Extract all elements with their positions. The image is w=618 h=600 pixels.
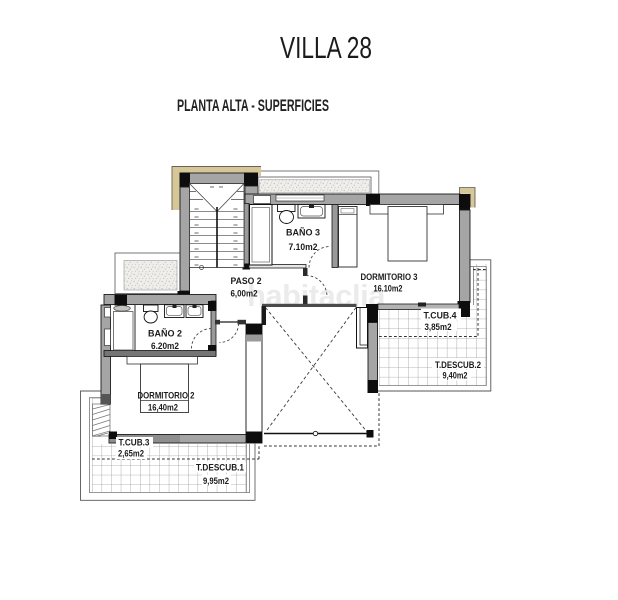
- svg-text:BAÑO 2: BAÑO 2: [148, 329, 182, 340]
- svg-text:6.20m2: 6.20m2: [151, 341, 179, 352]
- svg-text:T.CUB.4: T.CUB.4: [424, 311, 458, 322]
- svg-text:DORMITORIO 3: DORMITORIO 3: [361, 272, 418, 283]
- svg-text:2,65m2: 2,65m2: [118, 449, 144, 460]
- svg-text:T.DESCUB.1: T.DESCUB.1: [196, 463, 245, 474]
- svg-text:16,40m2: 16,40m2: [148, 403, 178, 414]
- svg-text:3,85m2: 3,85m2: [425, 322, 452, 333]
- svg-text:16.10m2: 16.10m2: [374, 284, 403, 295]
- svg-text:9,95m2: 9,95m2: [203, 476, 229, 487]
- svg-text:PLANTA ALTA - SUPERFICIES: PLANTA ALTA - SUPERFICIES: [177, 97, 329, 115]
- svg-text:VILLA 28: VILLA 28: [280, 31, 372, 65]
- svg-text:T.CUB.3: T.CUB.3: [119, 438, 150, 449]
- svg-text:PASO 2: PASO 2: [231, 276, 262, 287]
- svg-text:9,40m2: 9,40m2: [443, 371, 468, 382]
- svg-text:DORMITORIO 2: DORMITORIO 2: [138, 391, 195, 402]
- svg-text:BAÑO 3: BAÑO 3: [286, 228, 320, 239]
- svg-text:7.10m2: 7.10m2: [289, 242, 318, 253]
- svg-text:6,00m2: 6,00m2: [231, 289, 258, 300]
- svg-text:T.DESCUB.2: T.DESCUB.2: [435, 360, 481, 371]
